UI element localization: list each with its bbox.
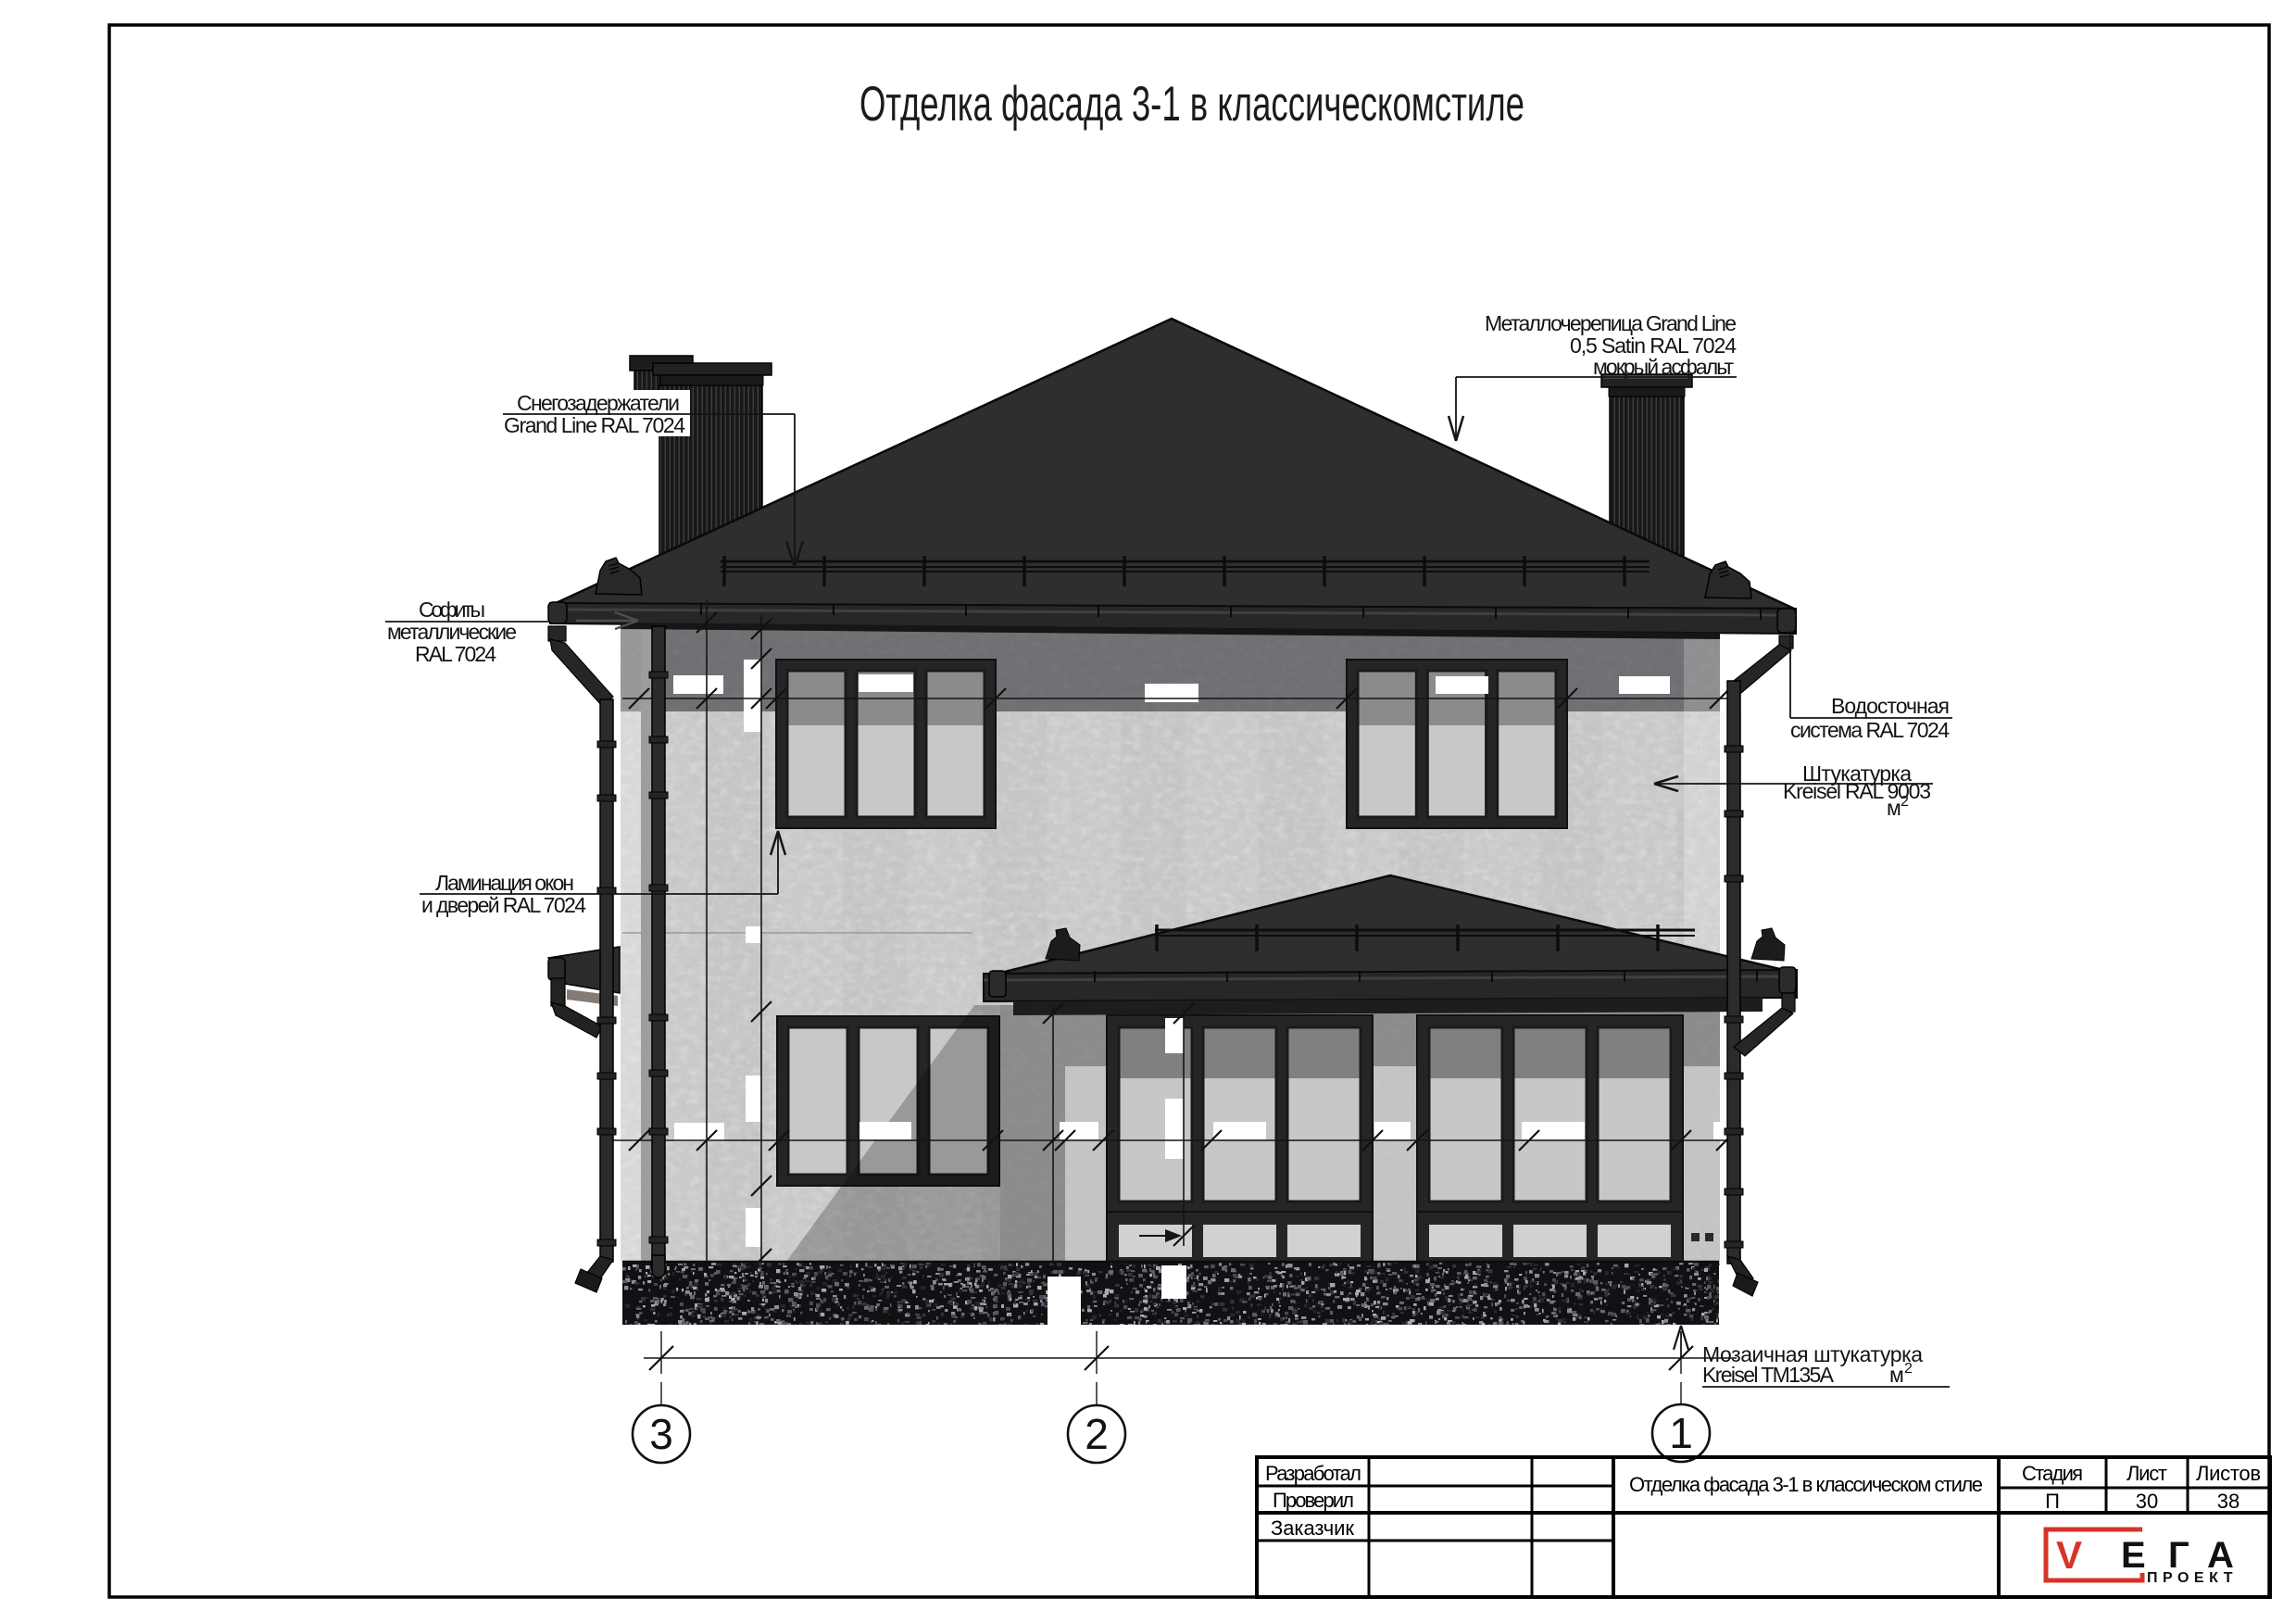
- svg-text:Е: Е: [2121, 1535, 2146, 1576]
- svg-text:металлические: металлические: [387, 620, 517, 644]
- svg-text:38: 38: [2217, 1490, 2240, 1513]
- svg-text:система RAL 7024: система RAL 7024: [1790, 718, 1950, 742]
- svg-text:Стадия: Стадия: [2022, 1462, 2083, 1485]
- svg-text:м: м: [1887, 796, 1901, 820]
- svg-text:мокрый асфальт: мокрый асфальт: [1593, 355, 1734, 379]
- svg-text:V: V: [2056, 1533, 2082, 1577]
- svg-text:Kreisel RAL 9003: Kreisel RAL 9003: [1783, 779, 1931, 803]
- svg-text:Kreisel TM135A: Kreisel TM135A: [1702, 1363, 1835, 1387]
- svg-text:2: 2: [1904, 1361, 1913, 1377]
- svg-text:Софиты: Софиты: [419, 598, 485, 622]
- svg-text:3: 3: [649, 1410, 673, 1458]
- svg-text:П: П: [2045, 1490, 2060, 1513]
- svg-text:RAL 7024: RAL 7024: [415, 642, 496, 666]
- svg-text:30: 30: [2136, 1490, 2158, 1513]
- svg-text:Лист: Лист: [2127, 1462, 2167, 1485]
- svg-text:Отделка фасада 3-1 в классичес: Отделка фасада 3-1 в классическомстиле: [859, 77, 1524, 132]
- svg-text:Разработал: Разработал: [1265, 1462, 1361, 1485]
- svg-text:Снегозадержатели: Снегозадержатели: [517, 391, 680, 415]
- svg-text:Отделка фасада 3-1 в классичес: Отделка фасада 3-1 в классическом стиле: [1629, 1473, 1983, 1496]
- svg-text:Ламинация окон: Ламинация окон: [435, 871, 574, 895]
- svg-text:1: 1: [1669, 1409, 1693, 1457]
- svg-text:Водосточная: Водосточная: [1831, 694, 1950, 718]
- svg-text:и дверей RAL 7024: и дверей RAL 7024: [421, 893, 586, 917]
- svg-text:ПРОЕКТ: ПРОЕКТ: [2147, 1570, 2238, 1586]
- svg-text:2: 2: [1085, 1410, 1109, 1458]
- svg-text:Металлочерепица Grand Line: Металлочерепица Grand Line: [1485, 311, 1737, 335]
- svg-text:Grand Line RAL 7024: Grand Line RAL 7024: [504, 413, 685, 437]
- svg-text:м: м: [1889, 1363, 1904, 1387]
- svg-text:2: 2: [1901, 794, 1909, 810]
- svg-text:Заказчик: Заказчик: [1271, 1516, 1354, 1540]
- svg-text:Проверил: Проверил: [1273, 1489, 1354, 1512]
- svg-text:Листов: Листов: [2196, 1462, 2261, 1485]
